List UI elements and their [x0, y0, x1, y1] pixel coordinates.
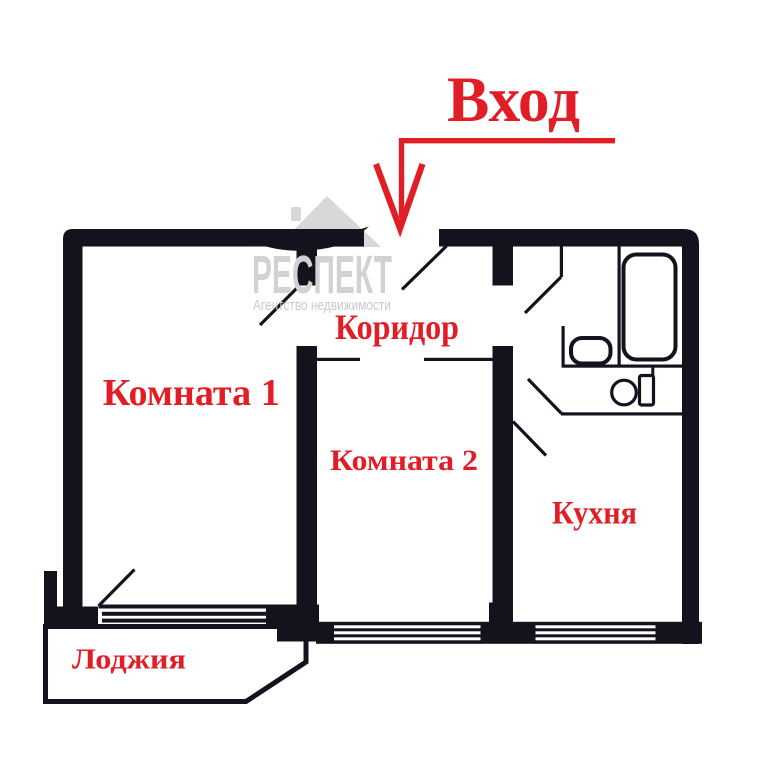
svg-text:Коридор: Коридор	[335, 307, 459, 347]
svg-text:Вход: Вход	[447, 64, 580, 135]
svg-text:Кухня: Кухня	[552, 496, 637, 532]
svg-text:Комната 2: Комната 2	[330, 444, 478, 477]
svg-text:Комната 1: Комната 1	[103, 372, 280, 414]
svg-text:РЕСПЕКТ: РЕСПЕКТ	[252, 245, 392, 305]
svg-text:Лоджия: Лоджия	[72, 645, 186, 676]
